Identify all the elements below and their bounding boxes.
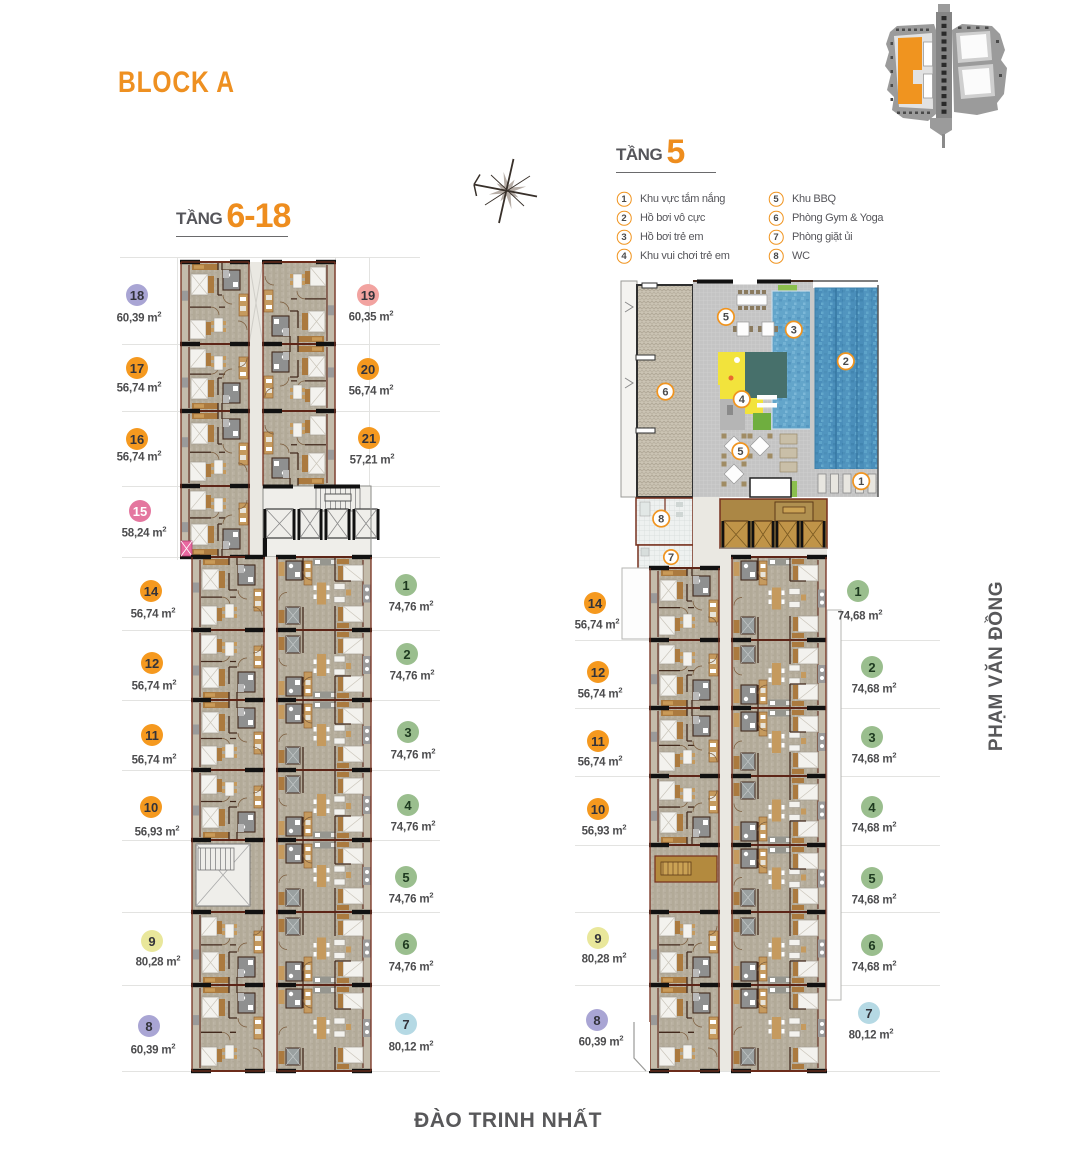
svg-text:5: 5 <box>723 312 729 324</box>
svg-text:5: 5 <box>737 446 743 458</box>
svg-text:3: 3 <box>791 324 797 336</box>
svg-text:7: 7 <box>668 552 674 564</box>
svg-text:1: 1 <box>858 476 864 488</box>
svg-text:8: 8 <box>658 513 664 525</box>
svg-text:4: 4 <box>739 394 746 406</box>
svg-text:6: 6 <box>662 386 668 398</box>
svg-text:2: 2 <box>843 356 849 368</box>
